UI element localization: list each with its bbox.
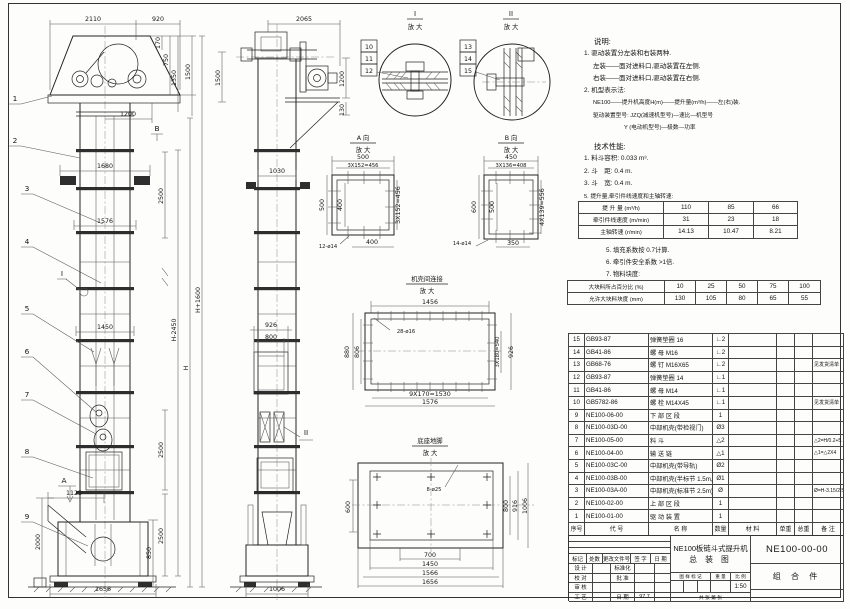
detail-i-balloon-12: 12 xyxy=(365,68,373,75)
bom-cell-code: NE100-06-00 xyxy=(585,409,649,422)
bom-row: 13 GB68-76 螺 钉 M16X65 ∟2 见发货清单 xyxy=(569,359,844,372)
bom-cell-name: 驱 动 装 置 xyxy=(649,510,713,523)
bom-cell-unit-weight xyxy=(777,459,795,472)
bom-cell-unit-weight xyxy=(777,371,795,384)
bom-cell-material xyxy=(729,497,777,510)
dim-1450: 1450 xyxy=(97,324,113,331)
bom-cell-qty: Ø2 xyxy=(713,459,729,472)
bom-cell-material xyxy=(729,384,777,397)
bom-cell-code: NE100-02-00 xyxy=(585,497,649,510)
joint-dim-1576: 1576 xyxy=(422,399,438,406)
bom-cell-unit-weight xyxy=(777,334,795,347)
value-cell: 105 xyxy=(696,293,727,305)
bom-cell-no: 9 xyxy=(569,409,585,422)
bom-cell-no: 15 xyxy=(569,334,585,347)
bom-cell-total-weight xyxy=(795,359,813,372)
detail-i-balloon-11: 11 xyxy=(365,56,373,63)
detail-a-zoom-label: 放 大 xyxy=(356,145,371,154)
bom-cell-name: 螺 钉 M16X65 xyxy=(649,359,713,372)
base-title: 底座地脚 xyxy=(417,436,442,445)
balloon-5: 5 xyxy=(25,304,30,313)
stamp-cell xyxy=(684,581,697,593)
bom-cell-name: 中部机壳(带检视门) xyxy=(649,422,713,435)
bom-cell-qty: ∟2 xyxy=(713,346,729,359)
bom-cell-qty: Ø3 xyxy=(713,422,729,435)
bom-cell-total-weight xyxy=(795,459,813,472)
sig-cell xyxy=(655,574,671,584)
bom-cell-total-weight xyxy=(795,447,813,460)
label-approve: 批 准 xyxy=(611,574,635,584)
dim-1350: 1350 xyxy=(171,70,178,86)
dim-side-1200: 1200 xyxy=(339,71,346,87)
bom-cell-remark xyxy=(813,459,844,472)
bom-cell-remark xyxy=(813,409,844,422)
bom-cell-total-weight xyxy=(795,396,813,409)
bom-cell-no: 7 xyxy=(569,434,585,447)
bom-header-material: 材 料 xyxy=(729,522,777,535)
bom-cell-code: GB93-87 xyxy=(585,334,649,347)
detail-b-dim-4x139-right: 4X139=556 xyxy=(539,188,546,226)
detail-b-dim-500-left: 500 xyxy=(489,201,496,213)
bom-cell-remark xyxy=(813,472,844,485)
specs-section: 技术性能: 1. 料斗容积: 0.033 m³. 2. 斗 距: 0.4 m. … xyxy=(576,141,838,203)
stamp-cell xyxy=(671,581,684,593)
value-cell: 10.47 xyxy=(709,226,754,238)
notes-section: 说明: 1. 驱动装置分左装和右装两种. 左装——面对进料口,驱动装置在左侧. … xyxy=(576,36,838,134)
base-dim-600: 600 xyxy=(345,501,352,513)
dim-h-plus-1600: H+1600 xyxy=(195,287,202,313)
sig-cell xyxy=(611,583,635,593)
balloon-9: 9 xyxy=(25,512,30,521)
value-cell: 50 xyxy=(727,281,758,293)
spec-item: 6. 牵引件安全系数 >1倍. xyxy=(606,257,816,269)
dim-2000: 2000 xyxy=(35,534,42,550)
value-cell: 100 xyxy=(789,281,821,293)
bom-row: 7 NE100-05-00 料 斗 △2 △2=H/0.2+5.75 xyxy=(569,434,844,447)
table-row: 大块料所占百分比 (%) 10 25 50 75 100 xyxy=(568,281,821,293)
detail-b-holes-label: 14-ø14 xyxy=(453,241,472,247)
bom-cell-unit-weight xyxy=(777,485,795,498)
bom-cell-qty: Ø xyxy=(713,485,729,498)
label-process: 工 艺 xyxy=(569,593,593,603)
dim-1200: 1200 xyxy=(120,111,136,118)
bom-cell-name: 螺 母 M14 xyxy=(649,384,713,397)
bom-cell-material xyxy=(729,422,777,435)
detail-a-title: A 向 xyxy=(357,133,370,142)
value-cell: 130 xyxy=(665,293,696,305)
bom-header-unit-weight: 单重 xyxy=(777,522,795,535)
drawing-title-line1: NE100板链斗式提升机 xyxy=(673,543,747,554)
bom-header-code: 代 号 xyxy=(585,522,649,535)
section-marker-b: B xyxy=(154,124,159,133)
bom-cell-material xyxy=(729,371,777,384)
label-scale: 比 例 xyxy=(731,573,751,581)
bom-cell-remark xyxy=(813,334,844,347)
bom-cell-unit-weight xyxy=(777,447,795,460)
detail-a-holes-label: 12-ø14 xyxy=(319,244,338,250)
bom-cell-code: GB5782-86 xyxy=(585,396,649,409)
dim-920: 920 xyxy=(152,16,164,23)
bom-cell-code: NE100-03A-00 xyxy=(585,485,649,498)
bom-cell-remark xyxy=(813,384,844,397)
bom-cell-name: 输 送 链 xyxy=(649,447,713,460)
rev-col-mark: 标记 xyxy=(569,554,587,564)
bom-cell-remark xyxy=(813,510,844,523)
dim-1125: 1125 xyxy=(66,490,82,497)
bom-cell-code: GB93-87 xyxy=(585,371,649,384)
dim-2110: 2110 xyxy=(85,16,101,23)
bom-cell-name: 弹簧垫圈 14 xyxy=(649,371,713,384)
sig-cell xyxy=(635,574,655,584)
bom-cell-material xyxy=(729,346,777,359)
note-line: NE100——提升机高度H(m)——提升量(m³/h)——左(右)装. xyxy=(593,97,838,109)
bom-cell-no: 8 xyxy=(569,422,585,435)
value-cell: 31 xyxy=(664,214,709,226)
bom-cell-no: 10 xyxy=(569,396,585,409)
base-dim-800: 800 xyxy=(503,500,510,512)
dim-h-minus-2450: H-2450 xyxy=(171,318,178,341)
bom-cell-name: 螺 栓 M14X45 xyxy=(649,396,713,409)
weight-value xyxy=(711,581,731,593)
table-row: 允许大块料块度 (mm) 130 105 80 65 55 xyxy=(568,293,821,305)
bom-row: 14 GB41-86 螺 母 M16 ∟2 xyxy=(569,346,844,359)
bom-cell-name: 中部机壳(带导轨) xyxy=(649,459,713,472)
dim-side-1500: 1500 xyxy=(215,70,222,86)
bom-cell-code: NE100-04-00 xyxy=(585,447,649,460)
value-cell: 10 xyxy=(665,281,696,293)
bom-cell-name: 弹簧垫圈 16 xyxy=(649,334,713,347)
notes-heading: 说明: xyxy=(594,36,838,48)
bom-row: 5 NE100-03C-00 中部机壳(带导轨) Ø2 xyxy=(569,459,844,472)
sig-cell xyxy=(655,583,671,593)
bom-header-row: 序号 代 号 名 称 数量 材 料 单重 总重 备 注 xyxy=(569,522,844,535)
bom-cell-qty: 1 xyxy=(713,409,729,422)
bom-header-remark: 备 注 xyxy=(813,522,844,535)
dim-2500-3: 2500 xyxy=(158,528,165,544)
bom-cell-remark: △2=H/0.2+5.75 xyxy=(813,434,844,447)
bom-cell-code: GB41-86 xyxy=(585,384,649,397)
assembly-label: 组 合 件 xyxy=(751,564,844,590)
rev-col-date: 日 期 xyxy=(651,554,671,564)
bom-cell-no: 13 xyxy=(569,359,585,372)
detail-b-dim-600-left: 600 xyxy=(471,201,478,213)
bom-cell-total-weight xyxy=(795,485,813,498)
balloon-7: 7 xyxy=(25,390,30,399)
bom-cell-total-weight xyxy=(795,384,813,397)
bom-cell-code: NE100-03D-00 xyxy=(585,422,649,435)
detail-view-b: B 向 放 大 450 3X136=408 600 500 4X139=556 … xyxy=(453,133,546,247)
detail-i-balloon-10: 10 xyxy=(365,44,373,51)
bom-table: 15 GB93-87 弹簧垫圈 16 ∟2 14 GB41-86 螺 母 M16… xyxy=(568,333,844,536)
base-dim-916: 916 xyxy=(512,500,519,512)
bom-cell-code: GB68-76 xyxy=(585,359,649,372)
detail-view-i: I 放 大 10 11 12 xyxy=(361,10,451,116)
bom-cell-name: 螺 母 M16 xyxy=(649,346,713,359)
label-stamp: 图 样 标 记 xyxy=(671,573,711,581)
value-cell: 8.21 xyxy=(754,226,798,238)
joint-dim-9x170: 9X170=1530 xyxy=(409,391,451,398)
bom-cell-material xyxy=(729,434,777,447)
bom-cell-total-weight xyxy=(795,371,813,384)
detail-ii-balloon-14: 14 xyxy=(464,56,472,63)
label-date: 日 期 xyxy=(611,593,635,603)
dim-1576: 1576 xyxy=(97,218,113,225)
bom-row: 9 NE100-06-00 下 部 区 段 1 xyxy=(569,409,844,422)
section-marker-i: I xyxy=(61,269,63,278)
bom-header-no: 序号 xyxy=(569,522,585,535)
bom-cell-code: NE100-03C-00 xyxy=(585,459,649,472)
bom-cell-total-weight xyxy=(795,409,813,422)
bom-cell-name: 料 斗 xyxy=(649,434,713,447)
bom-row: 1 NE100-01-00 驱 动 装 置 1 xyxy=(569,510,844,523)
detail-ii-title: II xyxy=(509,10,513,18)
bom-cell-unit-weight xyxy=(777,434,795,447)
label-standardization: 标准化 xyxy=(611,564,635,574)
dim-130: 130 xyxy=(339,104,346,116)
bom-cell-name: 上 部 区 段 xyxy=(649,497,713,510)
balloon-4: 4 xyxy=(25,237,30,246)
bom-header-total-weight: 总重 xyxy=(795,522,813,535)
detail-b-title: B 向 xyxy=(505,133,518,142)
row-label: 主轴转速 (r/min) xyxy=(579,226,664,238)
joint-holes-label: 28-ø16 xyxy=(397,329,415,335)
bom-cell-code: NE100-05-00 xyxy=(585,434,649,447)
detail-ii-balloon-13: 13 xyxy=(464,44,472,51)
spec-items-2: 5. 填充系数按 0.7计算. 6. 牵引件安全系数 >1倍. 7. 物料块度: xyxy=(576,245,816,280)
dim-800: 800 xyxy=(265,334,277,341)
bom-cell-no: 6 xyxy=(569,447,585,460)
bom-cell-material xyxy=(729,472,777,485)
label-audit: 审 核 xyxy=(569,583,593,593)
bom-cell-remark xyxy=(813,371,844,384)
bom-row: 2 NE100-02-00 上 部 区 段 1 xyxy=(569,497,844,510)
drawing-title: NE100板链斗式提升机 总 装 图 xyxy=(671,536,751,573)
bom-cell-no: 4 xyxy=(569,472,585,485)
detail-view-ii: II 放 大 13 14 15 xyxy=(460,10,550,120)
bom-cell-no: 12 xyxy=(569,371,585,384)
value-cell: 55 xyxy=(789,293,821,305)
row-label: 大块料所占百分比 (%) xyxy=(568,281,665,293)
detail-ii-balloon-15: 15 xyxy=(464,68,472,75)
joint-dim-1456: 1456 xyxy=(422,299,438,306)
base-anchor-detail-view: 底座地脚 放 大 8-ø25 600 800 916 1006 700 1450… xyxy=(345,436,534,588)
bom-row: 15 GB93-87 弹簧垫圈 16 ∟2 xyxy=(569,334,844,347)
bom-row: 6 NE100-04-00 输 送 链 △1 △1=△2X4 xyxy=(569,447,844,460)
bom-cell-material xyxy=(729,396,777,409)
section-marker-ii: II xyxy=(304,428,308,437)
dim-750: 750 xyxy=(163,54,170,66)
base-dim-1450: 1450 xyxy=(422,561,438,568)
table-row: 提 升 量 (m³/h) 110 85 66 xyxy=(579,202,798,214)
label-check: 校 对 xyxy=(569,574,593,584)
bom-cell-total-weight xyxy=(795,434,813,447)
dim-1656: 1656 xyxy=(95,586,111,593)
value-cell: 85 xyxy=(709,202,754,214)
base-dim-1006: 1006 xyxy=(522,498,529,514)
bom-cell-total-weight xyxy=(795,472,813,485)
bom-cell-unit-weight xyxy=(777,346,795,359)
bom-cell-unit-weight xyxy=(777,497,795,510)
base-dim-700: 700 xyxy=(424,552,436,559)
joint-title: 机壳间连接 xyxy=(411,274,443,283)
bom-cell-name: 中部机壳(半标节 1.5m,1m) xyxy=(649,472,713,485)
specs-heading: 技术性能: xyxy=(594,141,838,153)
bom-cell-no: 11 xyxy=(569,384,585,397)
joint-zoom-label: 放 大 xyxy=(420,286,435,295)
drawing-number: NE100-00-00 xyxy=(751,536,844,564)
joint-dim-926: 926 xyxy=(508,346,515,358)
front-elevation-view: 2110 920 170 750 1350 1500 1200 1680 157… xyxy=(9,16,205,598)
sig-cell xyxy=(593,564,611,574)
bom-cell-remark xyxy=(813,497,844,510)
bom-cell-unit-weight xyxy=(777,409,795,422)
rev-col-signature: 签 字 xyxy=(631,554,651,564)
bom-cell-material xyxy=(729,485,777,498)
bom-cell-no: 2 xyxy=(569,497,585,510)
sig-cell xyxy=(655,564,671,574)
detail-view-a: A 向 放 大 500 3X152=456 500 400 3X152=456 … xyxy=(319,133,402,250)
empty-cell xyxy=(751,590,844,602)
joint-dim-3x180: 3X180=540 xyxy=(495,336,501,367)
dim-2500-2: 2500 xyxy=(158,442,165,458)
bom-cell-qty: Ø1 xyxy=(713,472,729,485)
value-cell: 23 xyxy=(709,214,754,226)
bom-cell-no: 1 xyxy=(569,510,585,523)
row-label: 牵引件线速度 (m/min) xyxy=(579,214,664,226)
detail-b-dim-350-bottom: 350 xyxy=(507,240,519,247)
base-dim-1656: 1656 xyxy=(422,579,438,586)
bom-cell-unit-weight xyxy=(777,510,795,523)
bom-cell-qty: 1 xyxy=(713,497,729,510)
bom-cell-material xyxy=(729,334,777,347)
bom-cell-total-weight xyxy=(795,422,813,435)
value-cell: 65 xyxy=(758,293,789,305)
bom-cell-name: 下 部 区 段 xyxy=(649,409,713,422)
joint-dim-806: 806 xyxy=(354,346,361,358)
balloon-6: 6 xyxy=(25,347,30,356)
stamp-cell xyxy=(698,581,711,593)
dim-926: 926 xyxy=(265,322,277,329)
row-label: 提 升 量 (m³/h) xyxy=(579,202,664,214)
detail-ii-zoom-label: 放 大 xyxy=(504,22,519,31)
bom-cell-qty: ∟2 xyxy=(713,359,729,372)
bom-cell-unit-weight xyxy=(777,384,795,397)
label-design: 设 计 xyxy=(569,564,593,574)
sig-cell xyxy=(635,564,655,574)
dim-1500: 1500 xyxy=(185,64,192,80)
bom-cell-remark: 见发货清单 xyxy=(813,359,844,372)
rev-col-count: 处数 xyxy=(587,554,603,564)
bom-row: 8 NE100-03D-00 中部机壳(带检视门) Ø3 xyxy=(569,422,844,435)
dim-1030: 1030 xyxy=(269,168,285,175)
detail-i-title: I xyxy=(414,10,416,18)
scale-value: 1:50 xyxy=(731,581,751,593)
bom-cell-qty: ∟1 xyxy=(713,384,729,397)
base-holes-label: 8-ø25 xyxy=(427,487,442,493)
spec-item: 3. 斗 宽: 0.4 m. xyxy=(584,178,838,190)
spec-item: 5. 填充系数按 0.7计算. xyxy=(606,245,816,257)
balloon-3: 3 xyxy=(25,184,30,193)
bom-cell-remark: 见发货清单 xyxy=(813,396,844,409)
detail-a-dim-3x152-top: 3X152=456 xyxy=(347,163,378,169)
bom-cell-material xyxy=(729,447,777,460)
sig-cell xyxy=(655,593,671,603)
spec-item: 2. 斗 距: 0.4 m. xyxy=(584,166,838,178)
note-line: 右装——面对进料口,驱动装置在右侧. xyxy=(593,73,838,85)
bom-row: 10 GB5782-86 螺 栓 M14X45 ∟1 见发货清单 xyxy=(569,396,844,409)
detail-a-dim-500-top: 500 xyxy=(357,154,369,161)
row-label: 允许大块料块度 (mm) xyxy=(568,293,665,305)
bom-cell-unit-weight xyxy=(777,422,795,435)
bom-row: 4 NE100-03B-00 中部机壳(半标节 1.5m,1m) Ø1 xyxy=(569,472,844,485)
bom-cell-no: 3 xyxy=(569,485,585,498)
balloon-8: 8 xyxy=(25,447,30,456)
bom-cell-material xyxy=(729,510,777,523)
bom-cell-remark: Ø=H-3.15/2.5 xyxy=(813,485,844,498)
bom-cell-material xyxy=(729,409,777,422)
bom-cell-qty: 1 xyxy=(713,510,729,523)
detail-b-zoom-label: 放 大 xyxy=(504,145,519,154)
sig-cell xyxy=(593,574,611,584)
bom-cell-material xyxy=(729,359,777,372)
bom-cell-qty: ∟1 xyxy=(713,396,729,409)
dim-170: 170 xyxy=(155,37,162,49)
side-elevation-view: 2065 1500 1200 130 1030 926 800 1006 II xyxy=(215,16,350,600)
title-block: 标记 处数 更改文件号 签 字 日 期 设 计 标准化 校 对 批 准 审 核 … xyxy=(568,535,843,601)
detail-a-dim-400-left: 400 xyxy=(337,199,344,211)
dim-2500-1: 2500 xyxy=(158,188,165,204)
bom-cell-total-weight xyxy=(795,334,813,347)
dim-2065: 2065 xyxy=(296,16,312,23)
bom-cell-name: 中部机壳(标准节 2.5m) xyxy=(649,485,713,498)
detail-a-dim-500-left: 500 xyxy=(319,199,326,211)
bom-cell-qty: △1 xyxy=(713,447,729,460)
dim-1006: 1006 xyxy=(269,586,285,593)
dim-850: 850 xyxy=(146,547,153,559)
note-line: Y (电动机型号)—极数—功率 xyxy=(624,122,838,134)
note-line: 驱动装置型号: JZQ(减速机型号)—速比—机型号 xyxy=(593,110,838,122)
drawing-title-line2: 总 装 图 xyxy=(689,554,732,565)
dim-1680: 1680 xyxy=(97,163,113,170)
detail-a-dim-400-bottom: 400 xyxy=(366,239,378,246)
note-line: 左装——面对进料口,驱动装置在左侧. xyxy=(593,61,838,73)
bom-row: 3 NE100-03A-00 中部机壳(标准节 2.5m) Ø Ø=H-3.15… xyxy=(569,485,844,498)
section-marker-a: A xyxy=(61,476,66,485)
lump-size-table: 大块料所占百分比 (%) 10 25 50 75 100 允许大块料块度 (mm… xyxy=(567,280,821,305)
bom-cell-unit-weight xyxy=(777,472,795,485)
bom-header-qty: 数量 xyxy=(713,522,729,535)
value-cell: 80 xyxy=(727,293,758,305)
bom-cell-code: NE100-01-00 xyxy=(585,510,649,523)
base-zoom-label: 放 大 xyxy=(423,448,438,457)
drawing-canvas: 2110 920 170 750 1350 1500 1200 1680 157… xyxy=(0,0,560,609)
balloon-2: 2 xyxy=(13,136,18,145)
value-cell: 18 xyxy=(754,214,798,226)
bom-cell-remark xyxy=(813,346,844,359)
rev-col-docno: 更改文件号 xyxy=(603,554,631,564)
spec-item: 1. 料斗容积: 0.033 m³. xyxy=(584,153,838,165)
bom-cell-total-weight xyxy=(795,346,813,359)
dim-h: H xyxy=(183,365,190,370)
value-cell: 25 xyxy=(696,281,727,293)
bom-cell-total-weight xyxy=(795,510,813,523)
table-row: 主轴转速 (r/min) 14.13 10.47 8.21 xyxy=(579,226,798,238)
note-line: 2. 机型表示法: xyxy=(584,85,838,97)
drawing-sheet: 2110 920 170 750 1350 1500 1200 1680 157… xyxy=(0,0,850,609)
sig-cell xyxy=(593,583,611,593)
bom-cell-unit-weight xyxy=(777,359,795,372)
bom-cell-remark: △1=△2X4 xyxy=(813,447,844,460)
